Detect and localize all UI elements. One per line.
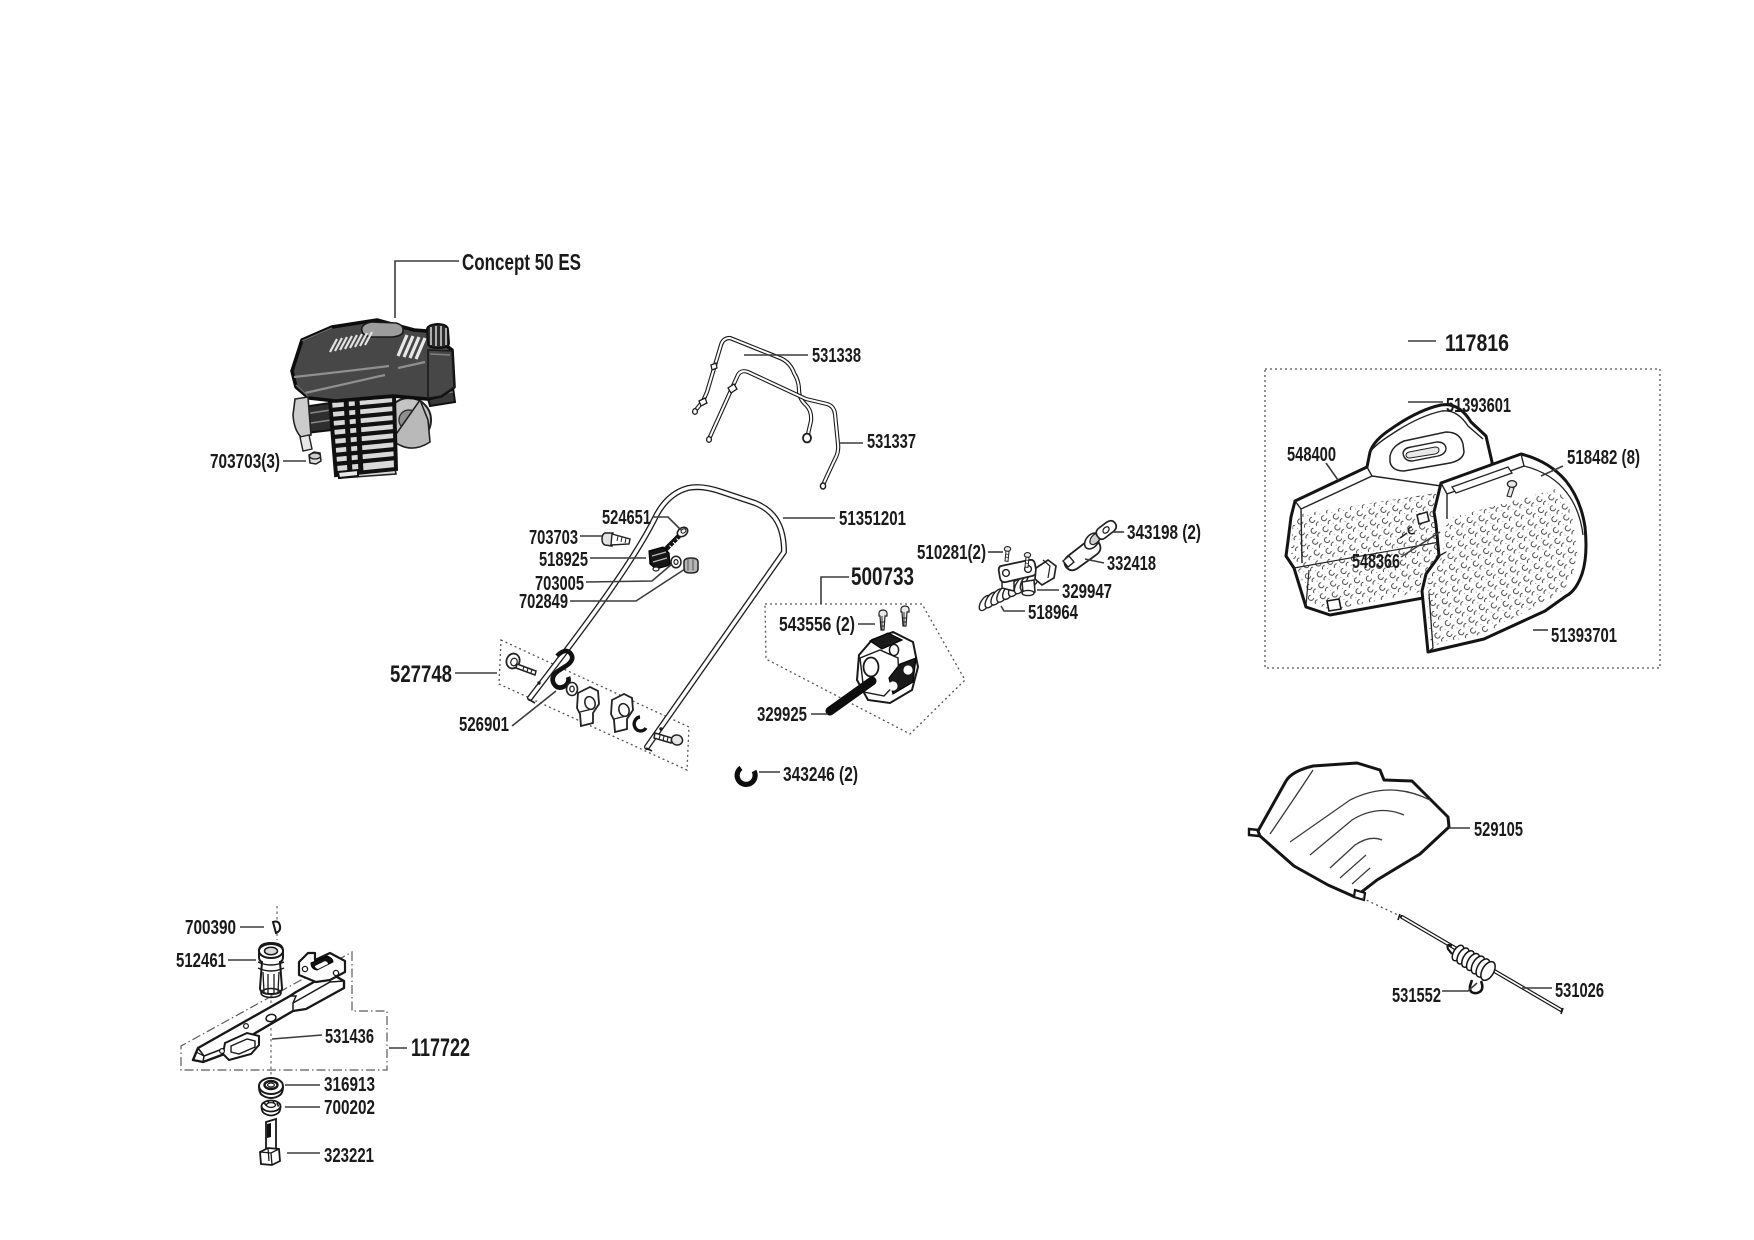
svg-text:531337: 531337 bbox=[867, 430, 916, 453]
svg-text:529105: 529105 bbox=[1474, 818, 1523, 841]
svg-text:518964: 518964 bbox=[1028, 601, 1078, 624]
svg-text:526901: 526901 bbox=[459, 713, 509, 736]
svg-text:343198 (2): 343198 (2) bbox=[1127, 521, 1201, 544]
svg-text:510281(2): 510281(2) bbox=[917, 541, 986, 564]
svg-text:51393701: 51393701 bbox=[1551, 624, 1617, 647]
svg-text:531436: 531436 bbox=[325, 1025, 374, 1048]
svg-text:531338: 531338 bbox=[812, 344, 861, 367]
svg-text:703703(3): 703703(3) bbox=[210, 450, 280, 473]
svg-text:531552: 531552 bbox=[1392, 984, 1441, 1007]
svg-text:500733: 500733 bbox=[851, 563, 914, 591]
svg-text:702849: 702849 bbox=[519, 590, 568, 613]
svg-text:343246 (2): 343246 (2) bbox=[783, 763, 858, 786]
svg-text:703703: 703703 bbox=[529, 526, 578, 549]
svg-text:117722: 117722 bbox=[411, 1034, 470, 1062]
svg-text:51351201: 51351201 bbox=[839, 507, 906, 530]
svg-text:700202: 700202 bbox=[324, 1096, 375, 1119]
svg-text:332418: 332418 bbox=[1107, 552, 1156, 575]
svg-text:548400: 548400 bbox=[1287, 443, 1336, 466]
svg-text:329947: 329947 bbox=[1062, 580, 1112, 603]
svg-text:700390: 700390 bbox=[185, 916, 236, 939]
svg-text:512461: 512461 bbox=[176, 949, 226, 972]
svg-text:548366: 548366 bbox=[1352, 550, 1400, 573]
svg-text:Concept 50 ES: Concept 50 ES bbox=[462, 249, 581, 275]
svg-text:117816: 117816 bbox=[1445, 330, 1509, 357]
svg-text:543556 (2): 543556 (2) bbox=[779, 613, 855, 636]
svg-text:524651: 524651 bbox=[602, 506, 651, 529]
svg-text:323221: 323221 bbox=[324, 1144, 374, 1167]
svg-text:316913: 316913 bbox=[324, 1073, 375, 1096]
svg-text:51393601: 51393601 bbox=[1446, 394, 1511, 417]
svg-text:518482 (8): 518482 (8) bbox=[1567, 446, 1640, 469]
svg-text:329925: 329925 bbox=[757, 703, 807, 726]
svg-text:531026: 531026 bbox=[1555, 979, 1604, 1002]
svg-text:527748: 527748 bbox=[390, 661, 452, 688]
svg-text:518925: 518925 bbox=[539, 548, 588, 571]
